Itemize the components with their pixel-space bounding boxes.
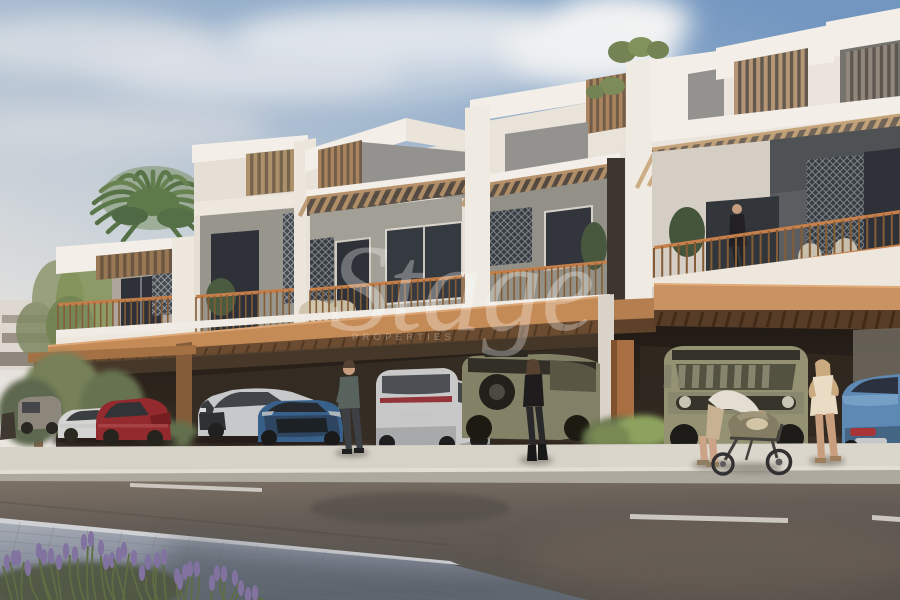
svg-text:PROPERTIES: PROPERTIES [352, 332, 455, 343]
